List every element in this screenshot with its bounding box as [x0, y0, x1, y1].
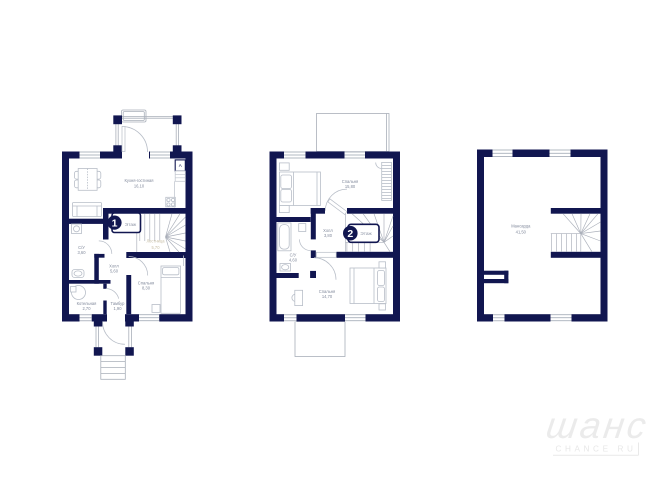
svg-text:5,70: 5,70 [152, 245, 161, 250]
svg-text:Этаж: Этаж [125, 222, 137, 228]
svg-text:1: 1 [112, 217, 118, 229]
svg-text:16,10: 16,10 [134, 183, 145, 188]
svg-text:Кухня-гостиная: Кухня-гостиная [125, 178, 154, 183]
svg-text:4,60: 4,60 [289, 258, 298, 263]
svg-text:14,70: 14,70 [322, 294, 333, 299]
svg-text:2: 2 [347, 228, 353, 240]
svg-text:шанс: шанс [544, 404, 652, 446]
svg-text:5,60: 5,60 [110, 269, 119, 274]
svg-text:А: А [179, 163, 182, 168]
svg-text:3,80: 3,80 [324, 233, 333, 238]
svg-text:Этаж: Этаж [360, 231, 372, 237]
svg-text:2,70: 2,70 [83, 306, 92, 311]
svg-text:3,60: 3,60 [78, 250, 87, 255]
svg-text:Лестница: Лестница [146, 239, 165, 244]
svg-text:CHANCE RU: CHANCE RU [555, 445, 636, 454]
svg-text:15,80: 15,80 [345, 184, 356, 189]
svg-text:Мансарда: Мансарда [511, 224, 531, 229]
svg-text:8,30: 8,30 [142, 286, 151, 291]
svg-text:1,90: 1,90 [114, 306, 123, 311]
svg-text:41,50: 41,50 [516, 229, 527, 234]
